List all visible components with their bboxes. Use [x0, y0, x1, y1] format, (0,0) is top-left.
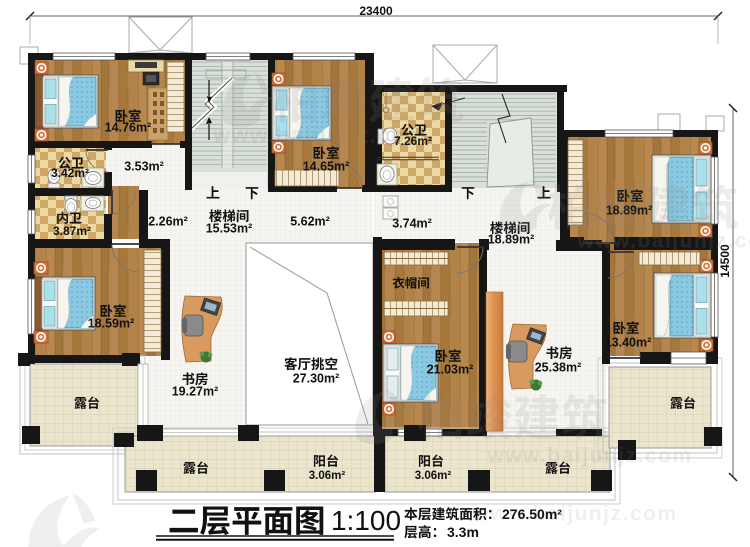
- svg-text:1:100: 1:100: [331, 505, 401, 536]
- svg-text:5.62m²: 5.62m²: [290, 214, 330, 228]
- svg-text:276.50m²: 276.50m²: [502, 506, 562, 522]
- svg-text:3.87m²: 3.87m²: [53, 224, 91, 238]
- svg-text:3.74m²: 3.74m²: [392, 216, 432, 230]
- svg-text:19.27m²: 19.27m²: [172, 384, 219, 398]
- svg-text:27.30m²: 27.30m²: [293, 371, 340, 385]
- svg-text:18.59m²: 18.59m²: [88, 316, 135, 330]
- svg-text:3.06m²: 3.06m²: [415, 470, 452, 482]
- svg-text:3.06m²: 3.06m²: [309, 470, 346, 482]
- svg-text:www.baijunjz.com: www.baijunjz.com: [576, 229, 750, 252]
- svg-text:2.26m²: 2.26m²: [148, 214, 188, 228]
- svg-text:15.53m²: 15.53m²: [206, 221, 253, 235]
- svg-text:25.38m²: 25.38m²: [535, 360, 582, 374]
- svg-text:www.baijunjz.com: www.baijunjz.com: [486, 444, 692, 467]
- svg-text:14.76m²: 14.76m²: [105, 120, 152, 134]
- svg-text:www.baijunjz.com: www.baijunjz.com: [212, 123, 427, 148]
- svg-text:3.53m²: 3.53m²: [124, 159, 164, 173]
- svg-text:13.40m²: 13.40m²: [605, 335, 652, 349]
- svg-text:3.3m: 3.3m: [447, 524, 479, 540]
- svg-text:23400: 23400: [359, 4, 393, 18]
- svg-text:3.42m²: 3.42m²: [51, 166, 89, 180]
- svg-text:18.89m²: 18.89m²: [488, 232, 535, 246]
- svg-text:14.65m²: 14.65m²: [303, 159, 350, 173]
- svg-text:21.03m²: 21.03m²: [427, 362, 474, 376]
